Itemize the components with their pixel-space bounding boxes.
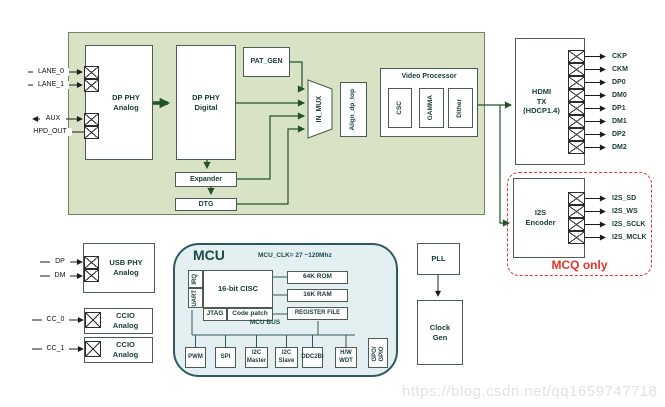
dp-phy-analog-block: DP PHY Analog	[85, 45, 153, 160]
mcu-title: MCU	[193, 248, 225, 263]
ddc2bi-block: DDC2Bi	[302, 347, 323, 368]
pin-lane0: LANE_0	[33, 68, 69, 76]
align-dp-top-block: Align_dp_top	[340, 82, 367, 137]
pad-i2s-sd-icon	[568, 192, 585, 205]
dither-block: Dither	[448, 88, 473, 128]
spi-block: SPI	[215, 347, 236, 368]
pad-cc0-icon	[85, 312, 101, 328]
pll-block: PLL	[417, 243, 460, 275]
pin-dm0: DM0	[612, 92, 627, 100]
pin-dm: DM	[50, 272, 70, 280]
jtag-block: JTAG	[203, 308, 227, 321]
irq-block: IRQ	[188, 270, 203, 288]
soc-block-diagram: DP PHY Analog DP PHY Digital PAT_GEN IN_…	[0, 0, 665, 407]
pin-dp2: DP2	[612, 131, 626, 139]
pwm-block: PWM	[185, 347, 206, 368]
i2c-master-block: I2CMaster	[245, 347, 268, 368]
pin-dm1: DM1	[612, 118, 627, 126]
pin-hpd-out: HPD_OUT	[28, 128, 72, 136]
register-file-block: REGISTER FILE	[287, 307, 348, 320]
pin-dp1: DP1	[612, 105, 626, 113]
pin-dm2: DM2	[612, 144, 627, 152]
pin-lane1: LANE_1	[33, 81, 69, 89]
pad-dp1-icon	[568, 102, 585, 115]
dp-phy-digital-block: DP PHY Digital	[176, 45, 236, 160]
pin-dp0: DP0	[612, 79, 626, 87]
pin-dp: DP	[50, 258, 70, 266]
pad-lane0-icon	[84, 66, 99, 79]
pin-i2s-ws: I2S_WS	[612, 208, 638, 216]
clock-gen-block: Clock Gen	[417, 300, 463, 365]
pad-aux-icon	[84, 113, 99, 126]
pad-dm2-icon	[568, 141, 585, 154]
pad-dm-icon	[84, 269, 99, 282]
pin-aux: AUX	[40, 115, 66, 123]
pin-ckm: CKM	[612, 66, 628, 74]
uart-block: UART	[188, 288, 203, 308]
in-mux-label: IN_MUX	[308, 80, 332, 138]
pin-i2s-sclk: I2S_SCLK	[612, 221, 645, 229]
ram-block: 16K RAM	[287, 289, 348, 302]
dtg-block: DTG	[175, 198, 237, 211]
mcu-bus-label: MCU BUS	[240, 319, 290, 326]
pad-ckp-icon	[568, 50, 585, 63]
i2c-slave-block: I2CSlave	[275, 347, 298, 368]
pad-cc1-icon	[85, 341, 101, 357]
pat-gen-block: PAT_GEN	[243, 47, 290, 77]
pad-dp-icon	[84, 256, 99, 269]
pad-i2s-sclk-icon	[568, 218, 585, 231]
watermark: https://blog.csdn.net/qq1659747718	[402, 383, 658, 400]
mcu-clock-note: MCU_CLK= 27 ~120Mhz	[258, 252, 332, 259]
pin-cc1: CC_1	[42, 345, 69, 353]
pin-ckp: CKP	[612, 53, 627, 61]
mcq-only-label: MCQ only	[507, 258, 652, 272]
gamma-block: GAMMA	[419, 88, 444, 128]
pin-i2s-sd: I2S_SD	[612, 195, 636, 203]
rom-block: 64K ROM	[287, 271, 348, 284]
pad-dm1-icon	[568, 115, 585, 128]
pad-ckm-icon	[568, 63, 585, 76]
gpo-gpio-block: GPO/ GPIO	[368, 338, 388, 368]
pin-i2s-mclk: I2S_MCLK	[612, 234, 647, 242]
csc-block: CSC	[388, 88, 412, 128]
expander-block: Expander	[175, 172, 237, 187]
pad-dp0-icon	[568, 76, 585, 89]
cisc-core-block: 16-bit CISC	[203, 270, 273, 308]
pad-lane1-icon	[84, 79, 99, 92]
pad-i2s-ws-icon	[568, 205, 585, 218]
pad-hpd-icon	[84, 126, 99, 139]
pad-dp2-icon	[568, 128, 585, 141]
pad-dm0-icon	[568, 89, 585, 102]
pin-cc0: CC_0	[42, 316, 69, 324]
pad-i2s-mclk-icon	[568, 231, 585, 244]
hw-wdt-block: H/WWDT	[335, 347, 357, 368]
